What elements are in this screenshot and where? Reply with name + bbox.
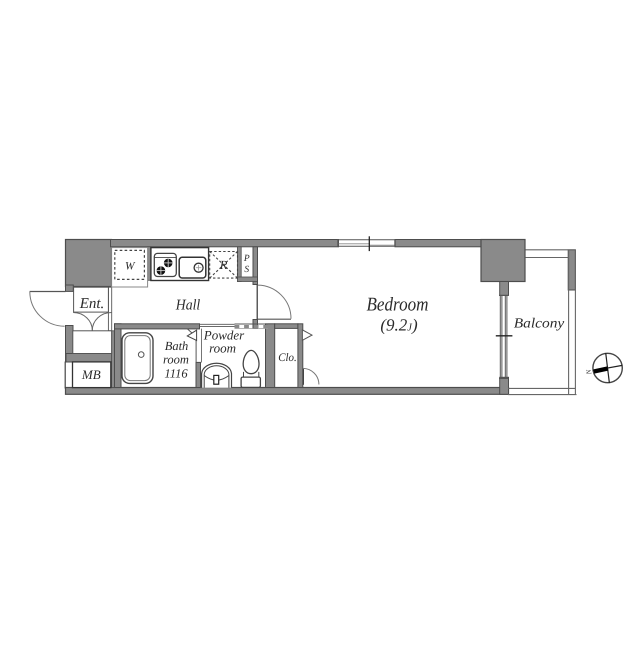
svg-text:P: P bbox=[243, 254, 250, 264]
svg-text:MB: MB bbox=[81, 367, 101, 382]
svg-text:W: W bbox=[125, 261, 136, 273]
svg-text:Bedroom: Bedroom bbox=[367, 295, 429, 316]
svg-text:room: room bbox=[209, 341, 236, 356]
svg-text:Bath: Bath bbox=[165, 339, 189, 353]
svg-text:Clo.: Clo. bbox=[278, 352, 297, 364]
svg-text:R: R bbox=[219, 258, 228, 272]
svg-text:Hall: Hall bbox=[175, 298, 200, 314]
svg-text:Balcony: Balcony bbox=[514, 317, 565, 332]
svg-text:room: room bbox=[163, 353, 189, 367]
svg-text:1116: 1116 bbox=[164, 367, 188, 381]
svg-text:(9.2J): (9.2J) bbox=[380, 316, 418, 335]
svg-text:Ent.: Ent. bbox=[79, 296, 105, 312]
svg-text:S: S bbox=[244, 265, 249, 275]
